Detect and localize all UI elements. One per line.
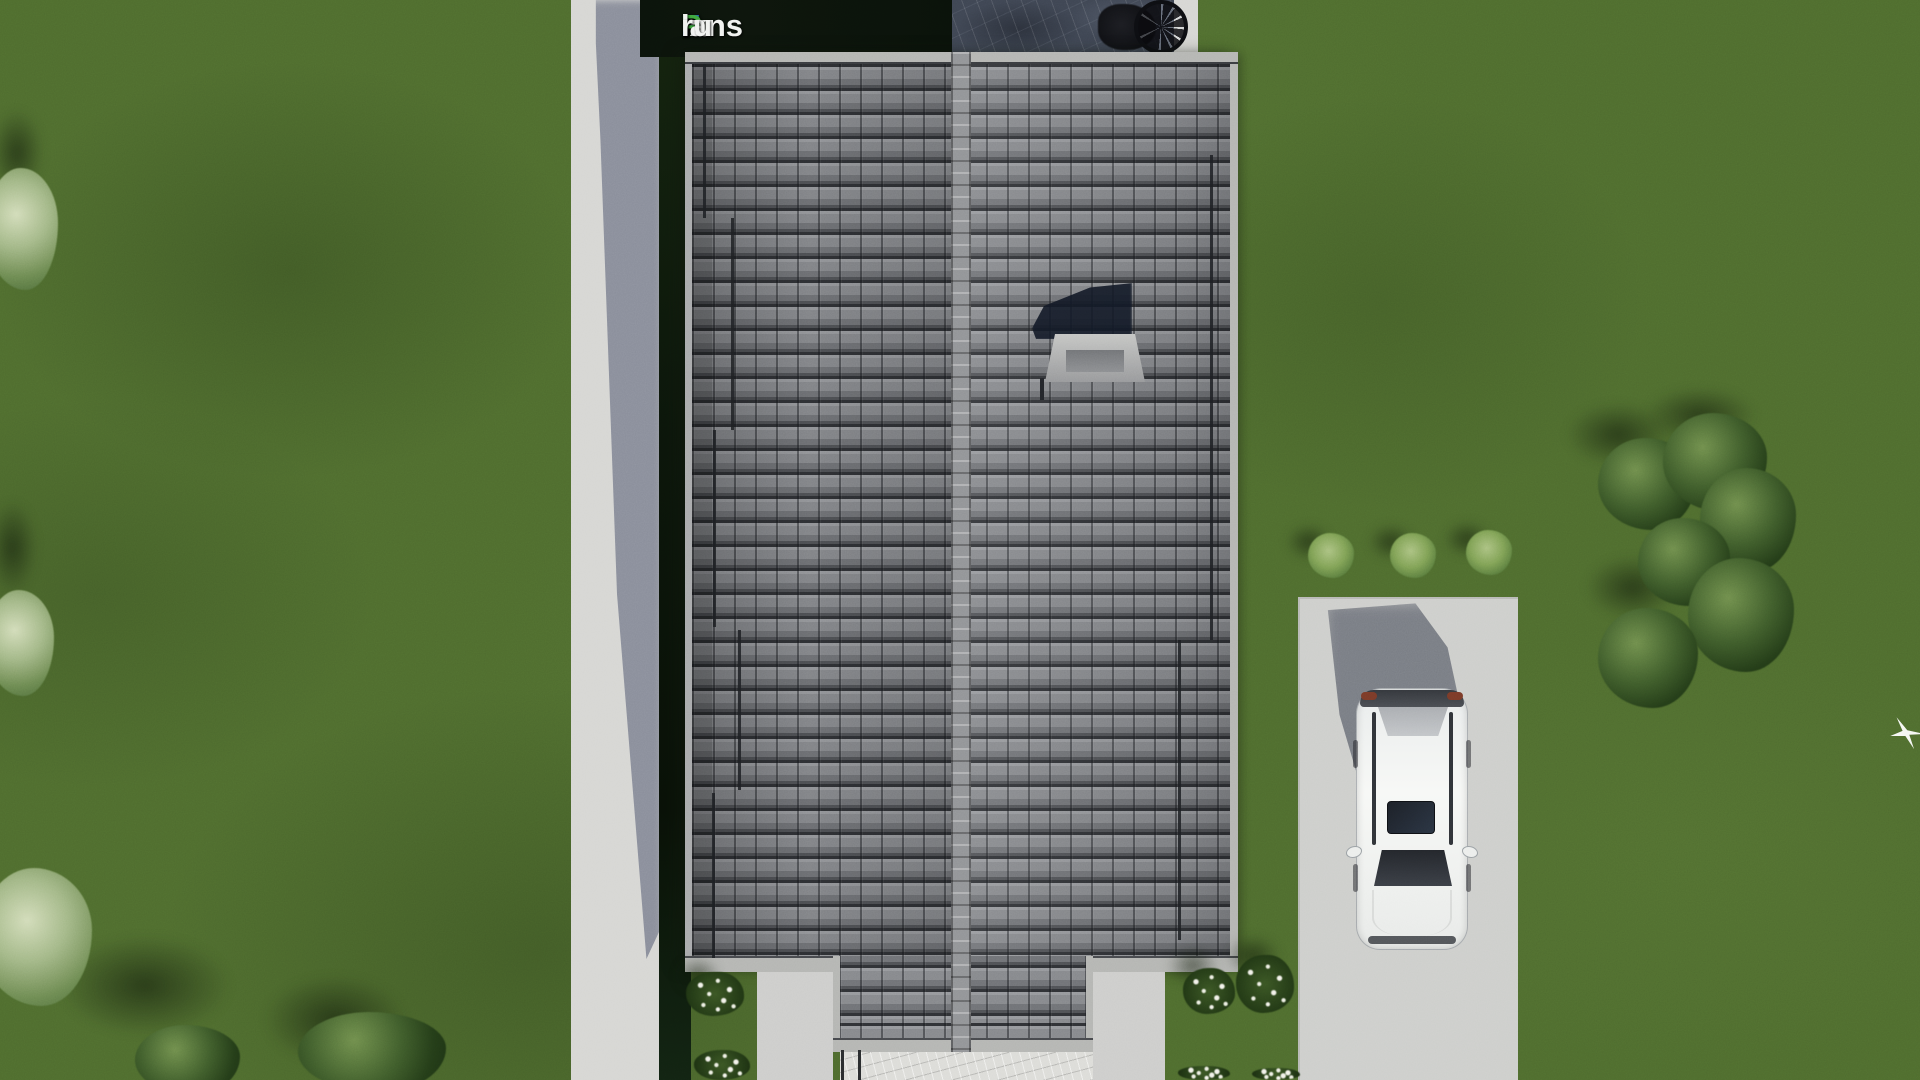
car-wheel (1353, 864, 1358, 892)
car-taillight (1447, 692, 1463, 700)
roof-seam (731, 218, 734, 430)
bush (1390, 533, 1436, 578)
flower-bush (694, 1050, 750, 1080)
chimney-pipe (1040, 378, 1044, 400)
car-roof-rail (1449, 712, 1453, 845)
roof-seam (703, 64, 706, 218)
car-windshield (1374, 850, 1452, 886)
roof-fascia-right (1230, 64, 1238, 970)
car-rear-window (1378, 707, 1448, 736)
downspout (858, 1050, 861, 1080)
downspout (841, 1050, 844, 1080)
bush (1466, 530, 1512, 575)
bush (1308, 533, 1354, 578)
flower-bush (1236, 955, 1294, 1013)
apron-right (1093, 972, 1165, 1080)
apron-left (757, 972, 833, 1080)
roof-ridge (951, 52, 971, 1052)
bicycle (1098, 0, 1190, 56)
flower-bush (686, 972, 744, 1016)
roof-seam (713, 430, 716, 627)
bush (1598, 608, 1698, 708)
car-mirror (1462, 846, 1478, 858)
roof-seam (738, 630, 741, 790)
bush (1688, 558, 1794, 672)
car-wheel (1466, 864, 1471, 892)
roof-shading-left (692, 64, 951, 958)
roof-fascia-left (685, 64, 692, 970)
watermark: FixPlans.ru (681, 9, 911, 45)
car-taillight (1361, 692, 1377, 700)
watermark-segment: ru (681, 9, 712, 43)
stone-walkway (840, 1052, 1093, 1080)
bicycle-wheel (1134, 0, 1188, 54)
flower-bush (1183, 968, 1235, 1014)
roof-seam (1178, 640, 1181, 940)
flower-bush (1178, 1066, 1230, 1080)
aerial-render-scene: FixPlans.ru (0, 0, 1920, 1080)
roof-seam (1210, 155, 1213, 640)
bush (298, 1012, 446, 1080)
roof-seam (712, 793, 715, 958)
car-hood-crease (1372, 890, 1452, 936)
chimney-cap (1066, 350, 1124, 372)
flower-bush (1252, 1068, 1300, 1080)
car-roof-rail (1372, 712, 1376, 845)
car-wheel (1466, 740, 1471, 768)
car-wheel (1353, 740, 1358, 768)
roof-shading-right (971, 64, 1230, 958)
car-sunroof (1387, 801, 1435, 834)
car-front-grille (1368, 936, 1456, 944)
